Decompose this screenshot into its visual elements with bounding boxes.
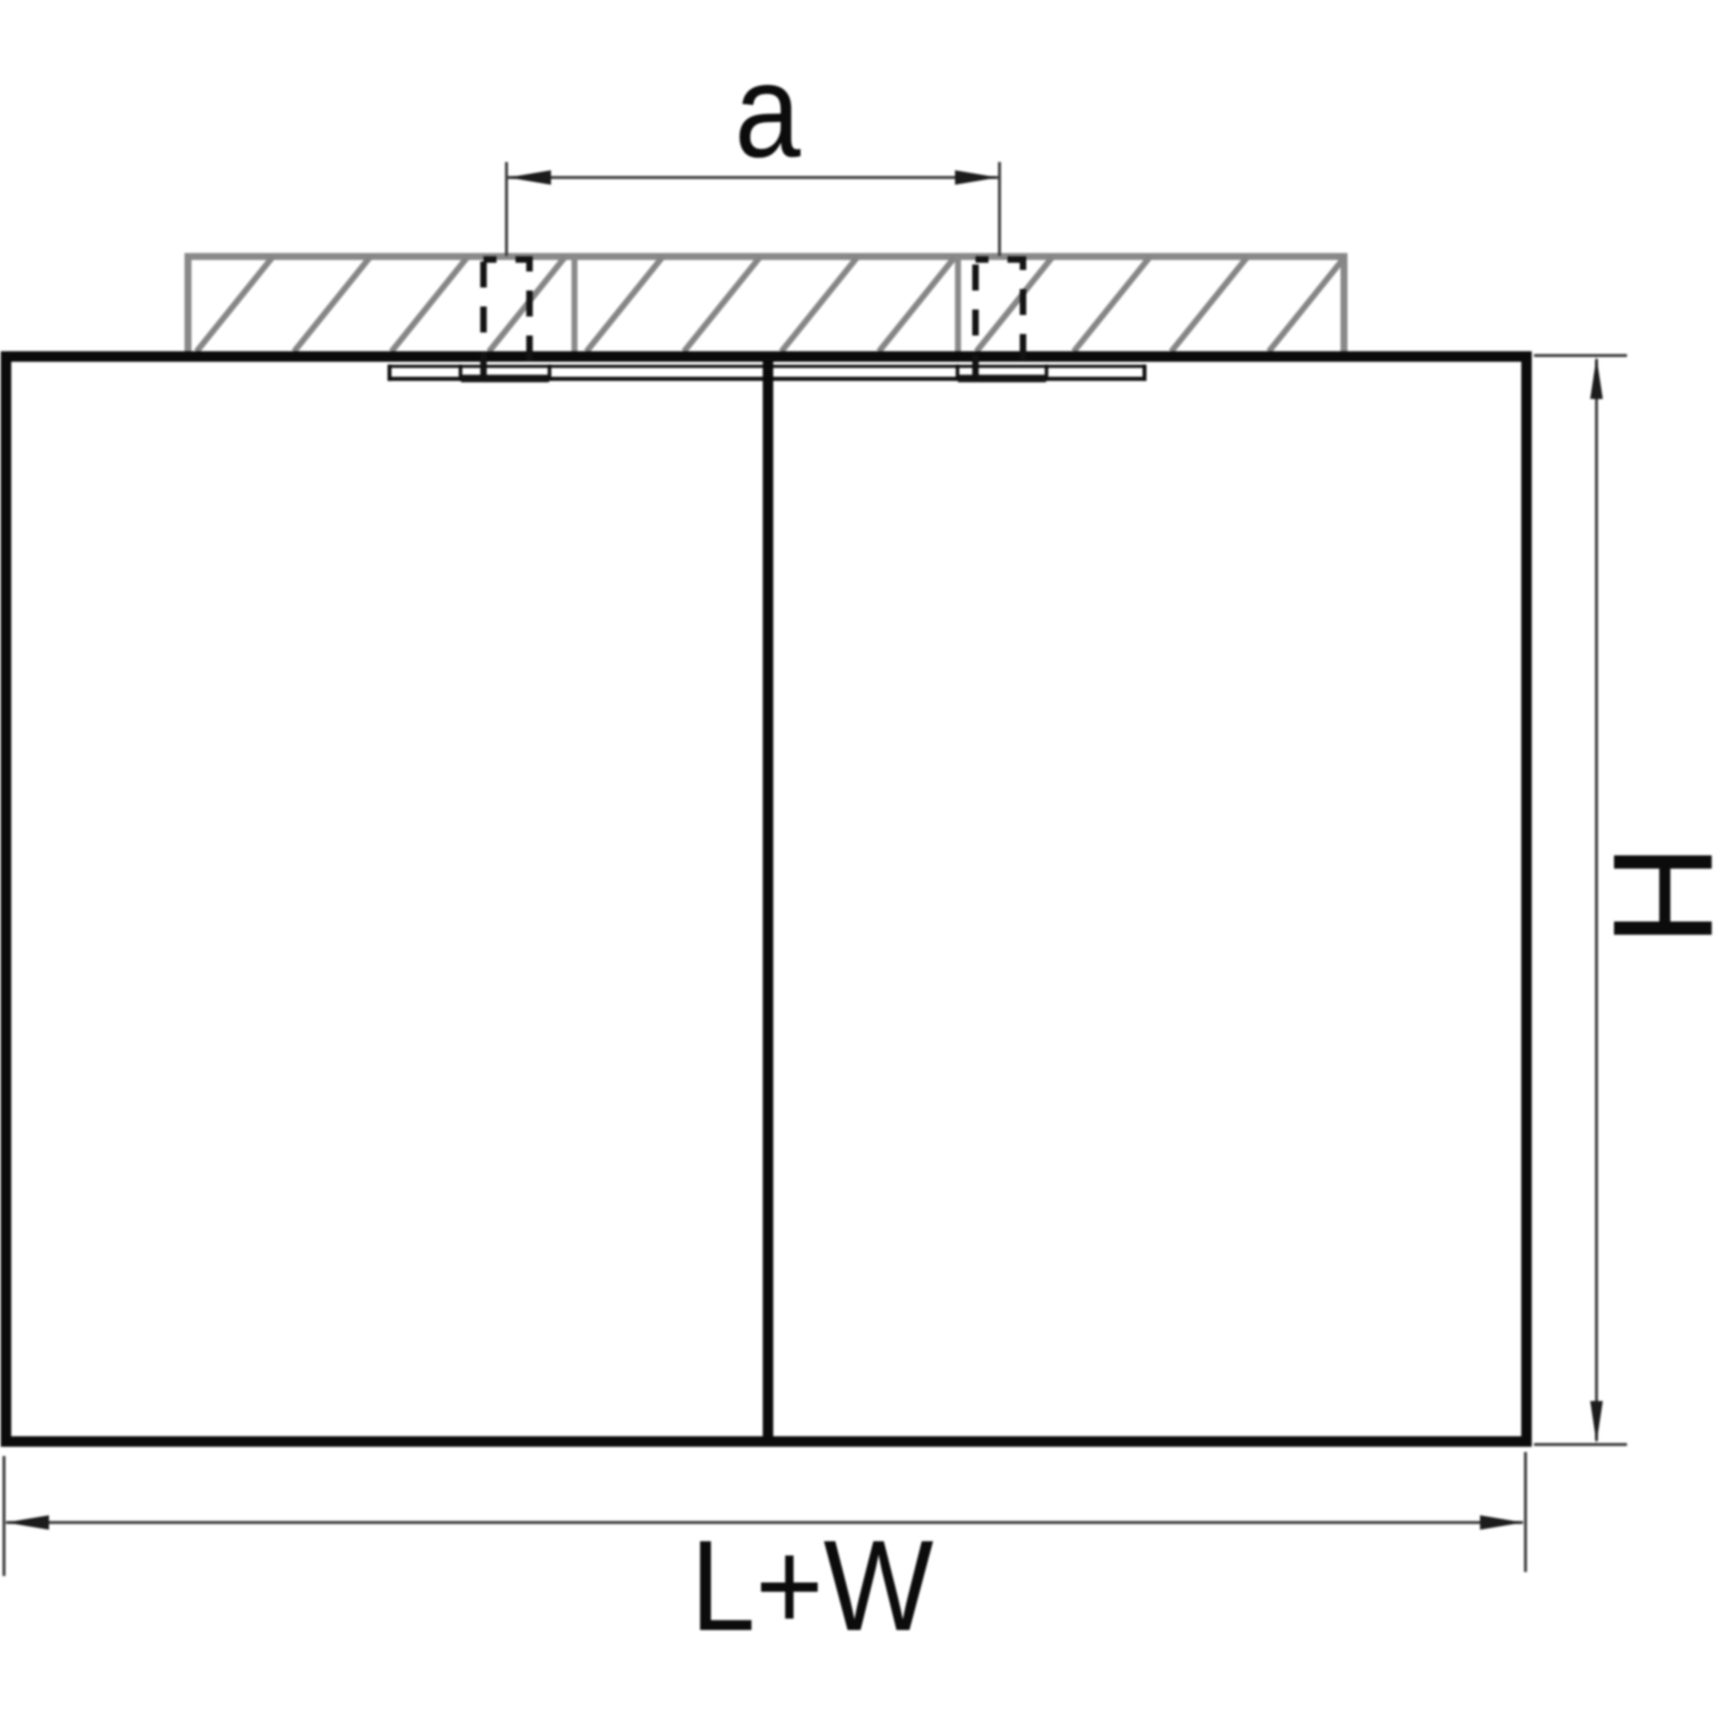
svg-text:H: H — [1583, 844, 1720, 947]
svg-text:a: a — [735, 38, 801, 186]
svg-text:L+W: L+W — [691, 1514, 934, 1658]
